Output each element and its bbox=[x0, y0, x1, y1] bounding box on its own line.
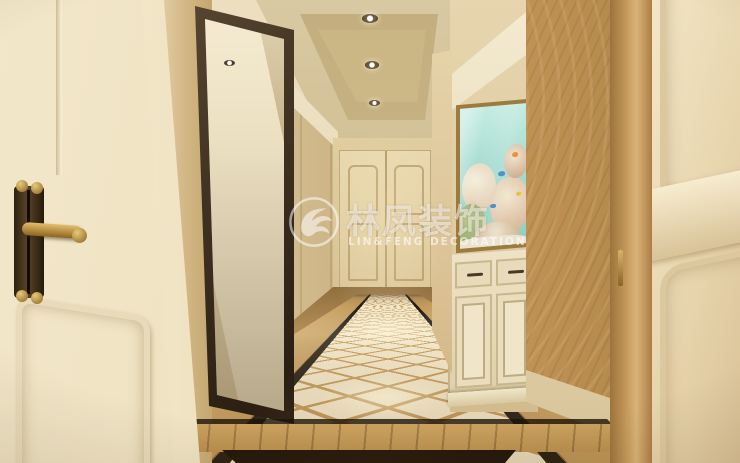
interior-rendering: 林凤装饰 LIN&FENG DECORATION bbox=[0, 0, 740, 463]
watermark: 林凤装饰 LIN&FENG DECORATION bbox=[288, 192, 508, 258]
phoenix-swirl-icon bbox=[288, 196, 340, 248]
watermark-subtitle: LIN&FENG DECORATION bbox=[348, 236, 527, 248]
